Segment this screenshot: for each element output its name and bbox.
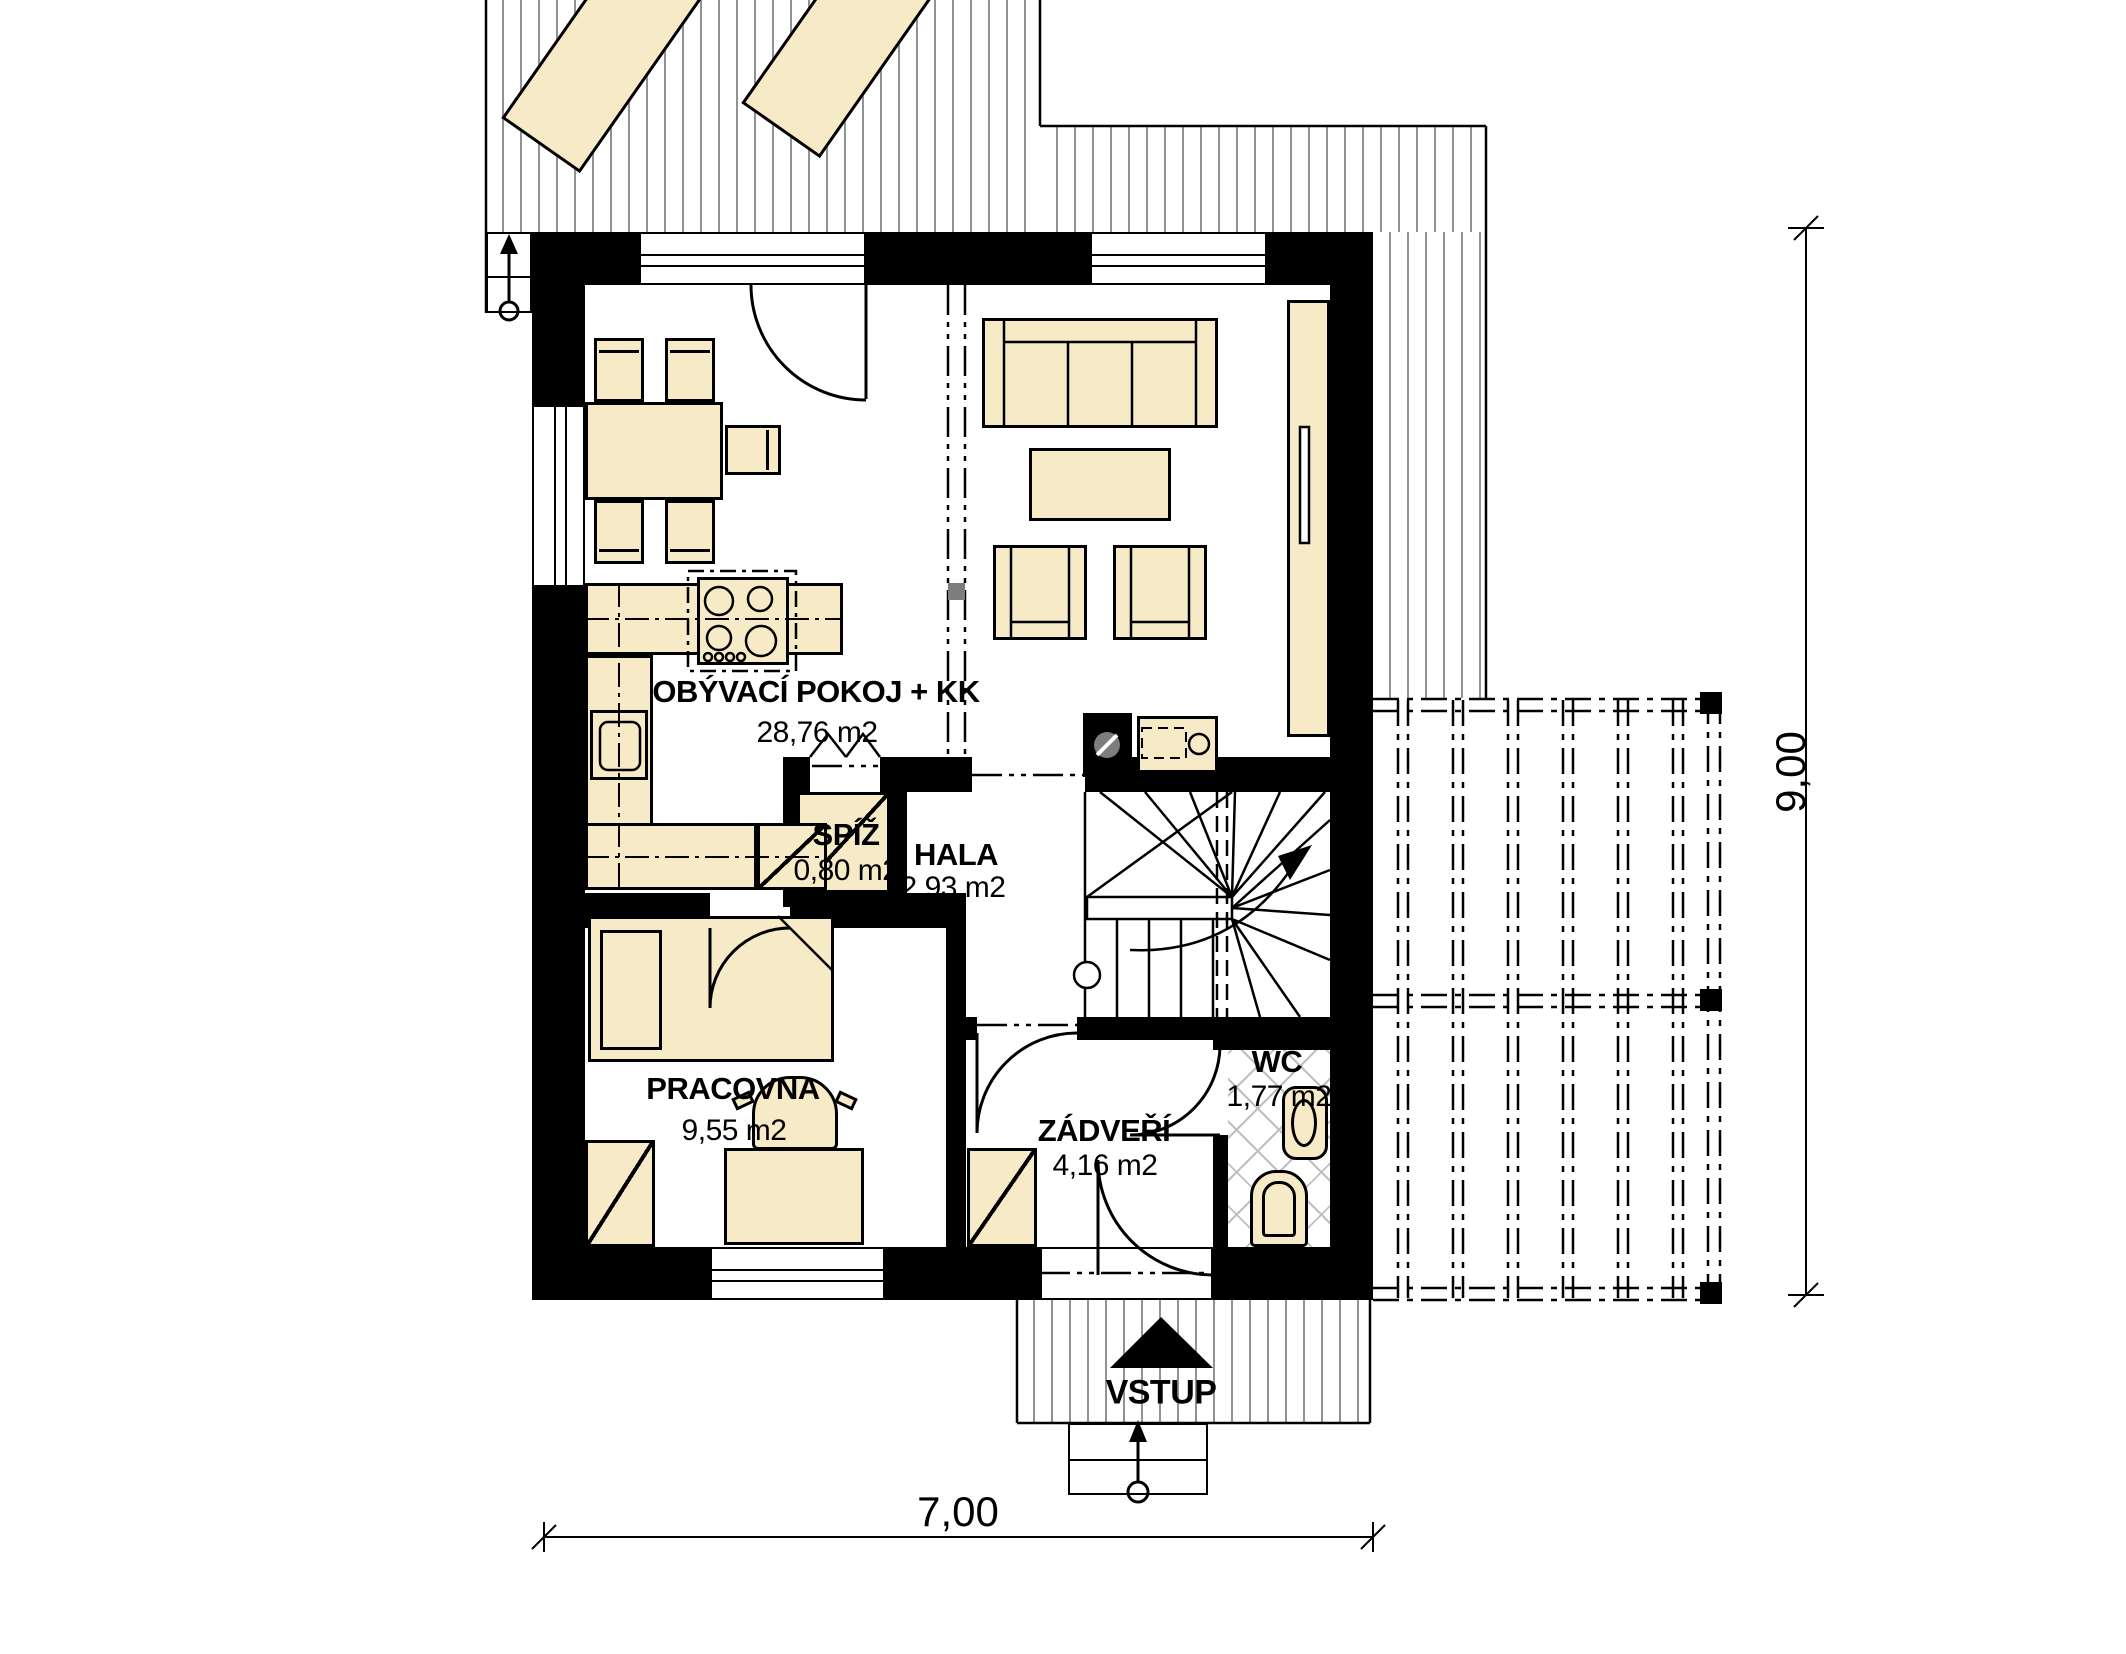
window-frame [711,1269,884,1282]
exterior-steps-entrance [1068,1423,1208,1495]
step-edge [1070,1459,1206,1461]
entrance-label: VSTUP [1106,1374,1217,1413]
staircase [1074,792,1330,1017]
exterior-steps-top [486,232,532,313]
wall-study-vestibule [946,928,966,1247]
terrace-deck-top-right [1040,126,1486,232]
floor-plan: OBÝVACÍ POKOJ + KK 28,76 m2 SPÍŽ 0,80 m2… [0,0,2126,1654]
wall-wc-left [1213,1033,1228,1045]
dimension-width: 7,00 [917,1488,999,1536]
pergola-posts [1700,692,1722,1304]
window-left [532,405,585,587]
desk-chair-armrest [834,1090,858,1110]
room-label-hall: HALA [914,837,998,873]
tall-cabinet [1287,300,1330,737]
pergola-beams [1373,698,1722,1300]
dining-chair [665,338,715,402]
toilet [1250,1170,1308,1247]
stove-fireplace [1083,713,1132,777]
room-area-wc: 1,77 m2 [1227,1080,1332,1114]
entrance-door-opening [1040,1247,1213,1300]
wardrobe [585,1140,655,1247]
armchair [1113,545,1207,640]
dining-chair [594,338,644,402]
wall-exterior-left [532,232,585,1300]
kitchen-cooktop [697,577,789,665]
terrace-deck-right-strip [1373,232,1486,698]
dining-chair [665,500,715,564]
hall-cabinet [1137,716,1218,773]
door-terrace [751,285,866,400]
kitchen-sink [590,710,648,780]
coat-closet [967,1148,1037,1247]
room-label-study: PRACOVNA [646,1071,819,1107]
room-label-living: OBÝVACÍ POKOJ + KK [652,674,979,710]
section-marker [948,583,965,600]
window-kitchen-top [639,232,866,285]
window-frame [640,254,865,267]
window-living-top [1090,232,1267,285]
step-edge [488,276,530,278]
wall-exterior-bottom [532,1247,1373,1300]
room-area-study: 9,55 m2 [682,1114,787,1148]
window-frame [1091,254,1266,267]
wall-hall-vestibule [946,1017,977,1040]
room-label-vestibule: ZÁDVEŘÍ [1038,1113,1171,1149]
wall-exterior-right [1330,232,1373,1300]
coffee-table [1029,448,1171,521]
room-area-living: 28,76 m2 [756,716,877,750]
sofa [982,318,1218,428]
room-area-pantry: 0,80 m2 [794,854,899,888]
armchair [993,545,1087,640]
dining-chair [725,425,781,475]
desk [724,1148,864,1245]
wall-wc-left [1213,1135,1228,1247]
room-label-wc: WC [1252,1044,1303,1080]
dining-chair [594,500,644,564]
toilet-bowl [1262,1181,1296,1237]
room-label-pantry: SPÍŽ [813,817,880,853]
room-area-vestibule: 4,16 m2 [1053,1149,1158,1183]
room-area-hall: 2,93 m2 [901,871,1006,905]
window-frame [554,406,567,586]
kitchen-counter-bottom [585,823,757,890]
daybed-pillow [600,930,662,1050]
dining-table [585,402,723,500]
dimension-height: 9,00 [1767,731,1815,813]
window-study-bottom [710,1247,885,1300]
